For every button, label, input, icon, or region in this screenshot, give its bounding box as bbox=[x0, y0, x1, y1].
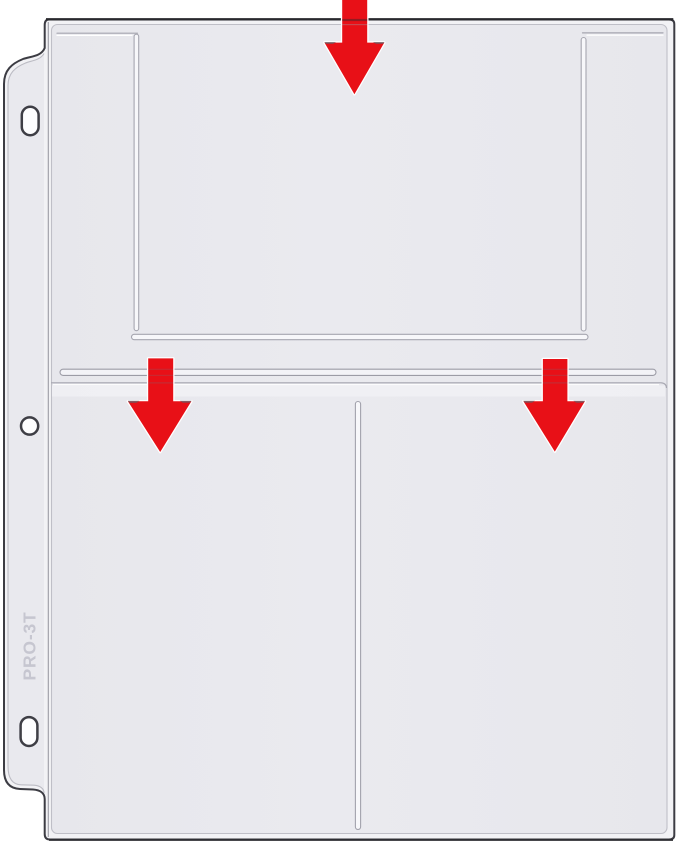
svg-text:PRO-3T: PRO-3T bbox=[20, 612, 40, 681]
